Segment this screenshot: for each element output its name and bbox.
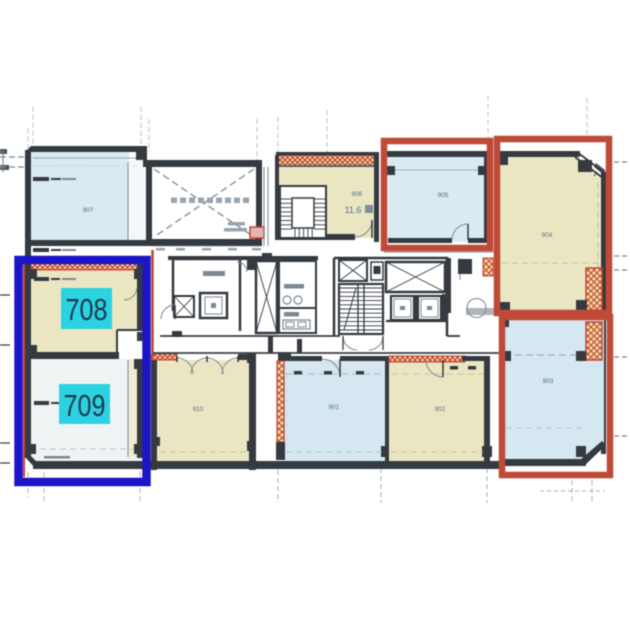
svg-text:902: 902 <box>435 406 446 413</box>
svg-text:904: 904 <box>542 232 553 239</box>
svg-text:901: 901 <box>329 404 340 411</box>
svg-text:910: 910 <box>193 406 204 413</box>
svg-text:708: 708 <box>66 292 108 327</box>
svg-text:11.6: 11.6 <box>345 205 362 215</box>
svg-text:906: 906 <box>352 191 363 198</box>
svg-text:907: 907 <box>83 207 94 214</box>
svg-text:709: 709 <box>64 388 106 423</box>
svg-text:905: 905 <box>438 192 449 199</box>
svg-text:903: 903 <box>543 378 554 385</box>
